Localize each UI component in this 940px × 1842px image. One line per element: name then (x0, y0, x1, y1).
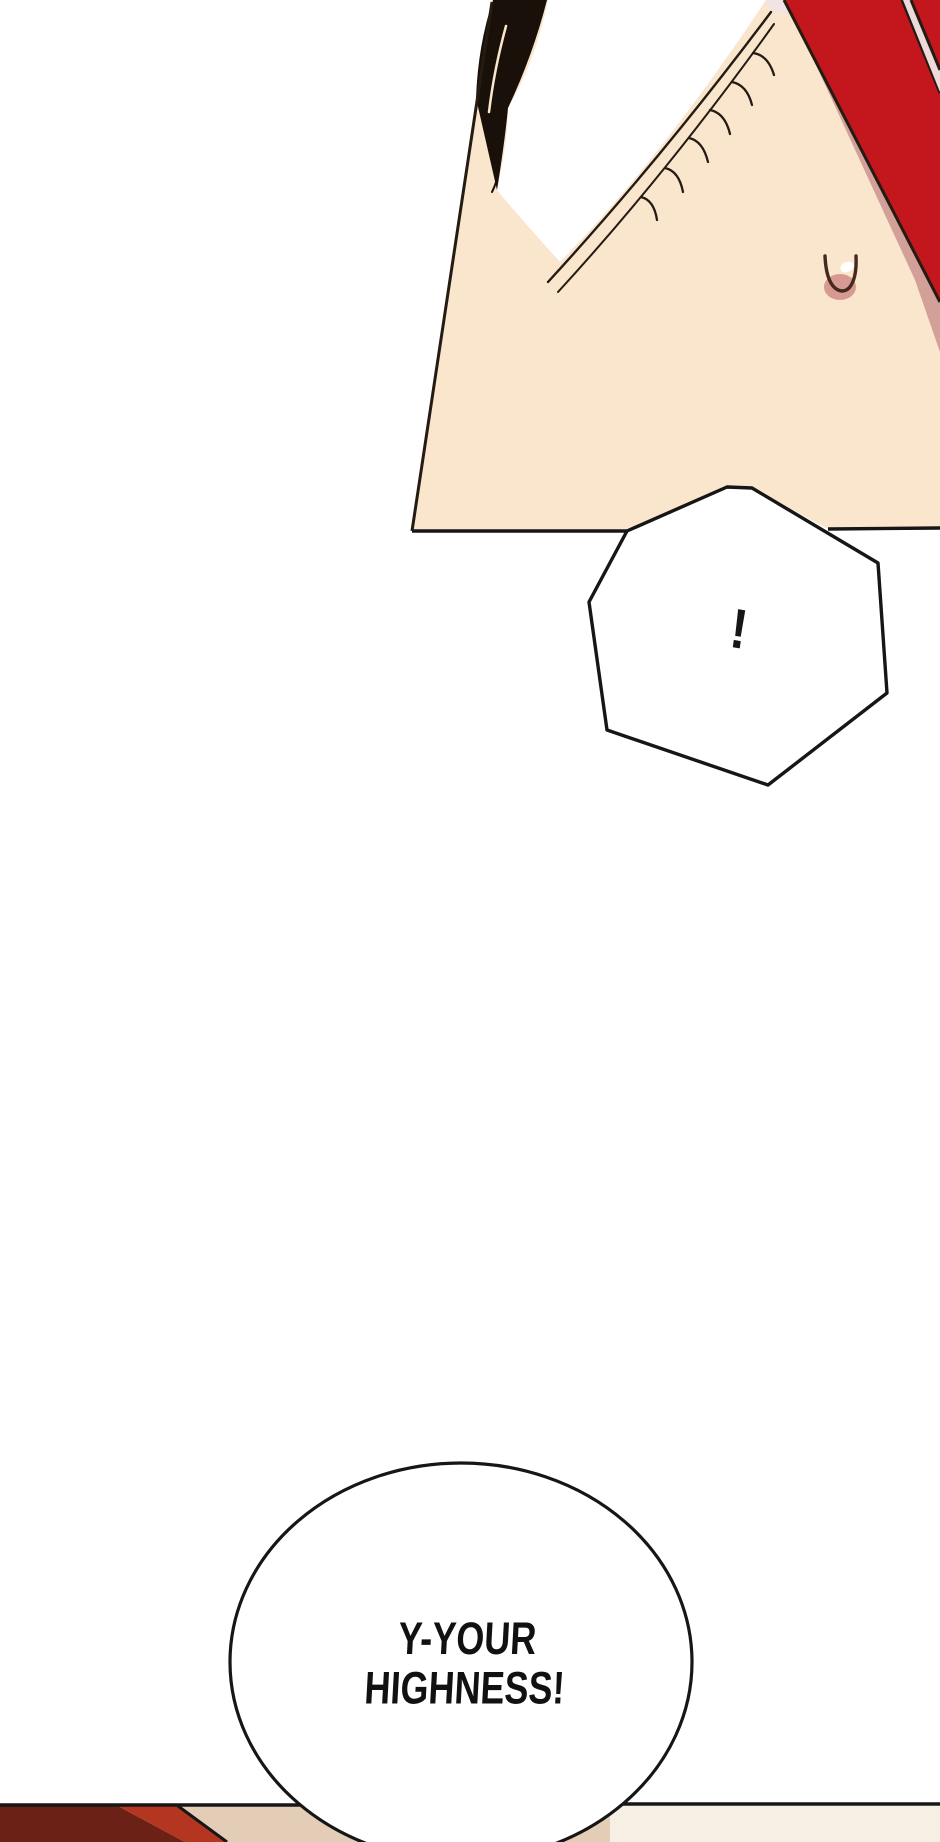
shout-line-2: HIGHNESS! (363, 1663, 566, 1713)
comic-page: ! Y-YOUR HIGHNESS! (0, 0, 940, 1842)
comic-artwork (0, 0, 940, 1842)
shout-text: Y-YOUR HIGHNESS! (363, 1613, 569, 1713)
shout-line-1: Y-YOUR (366, 1613, 569, 1663)
jaw-line-right (828, 528, 940, 529)
